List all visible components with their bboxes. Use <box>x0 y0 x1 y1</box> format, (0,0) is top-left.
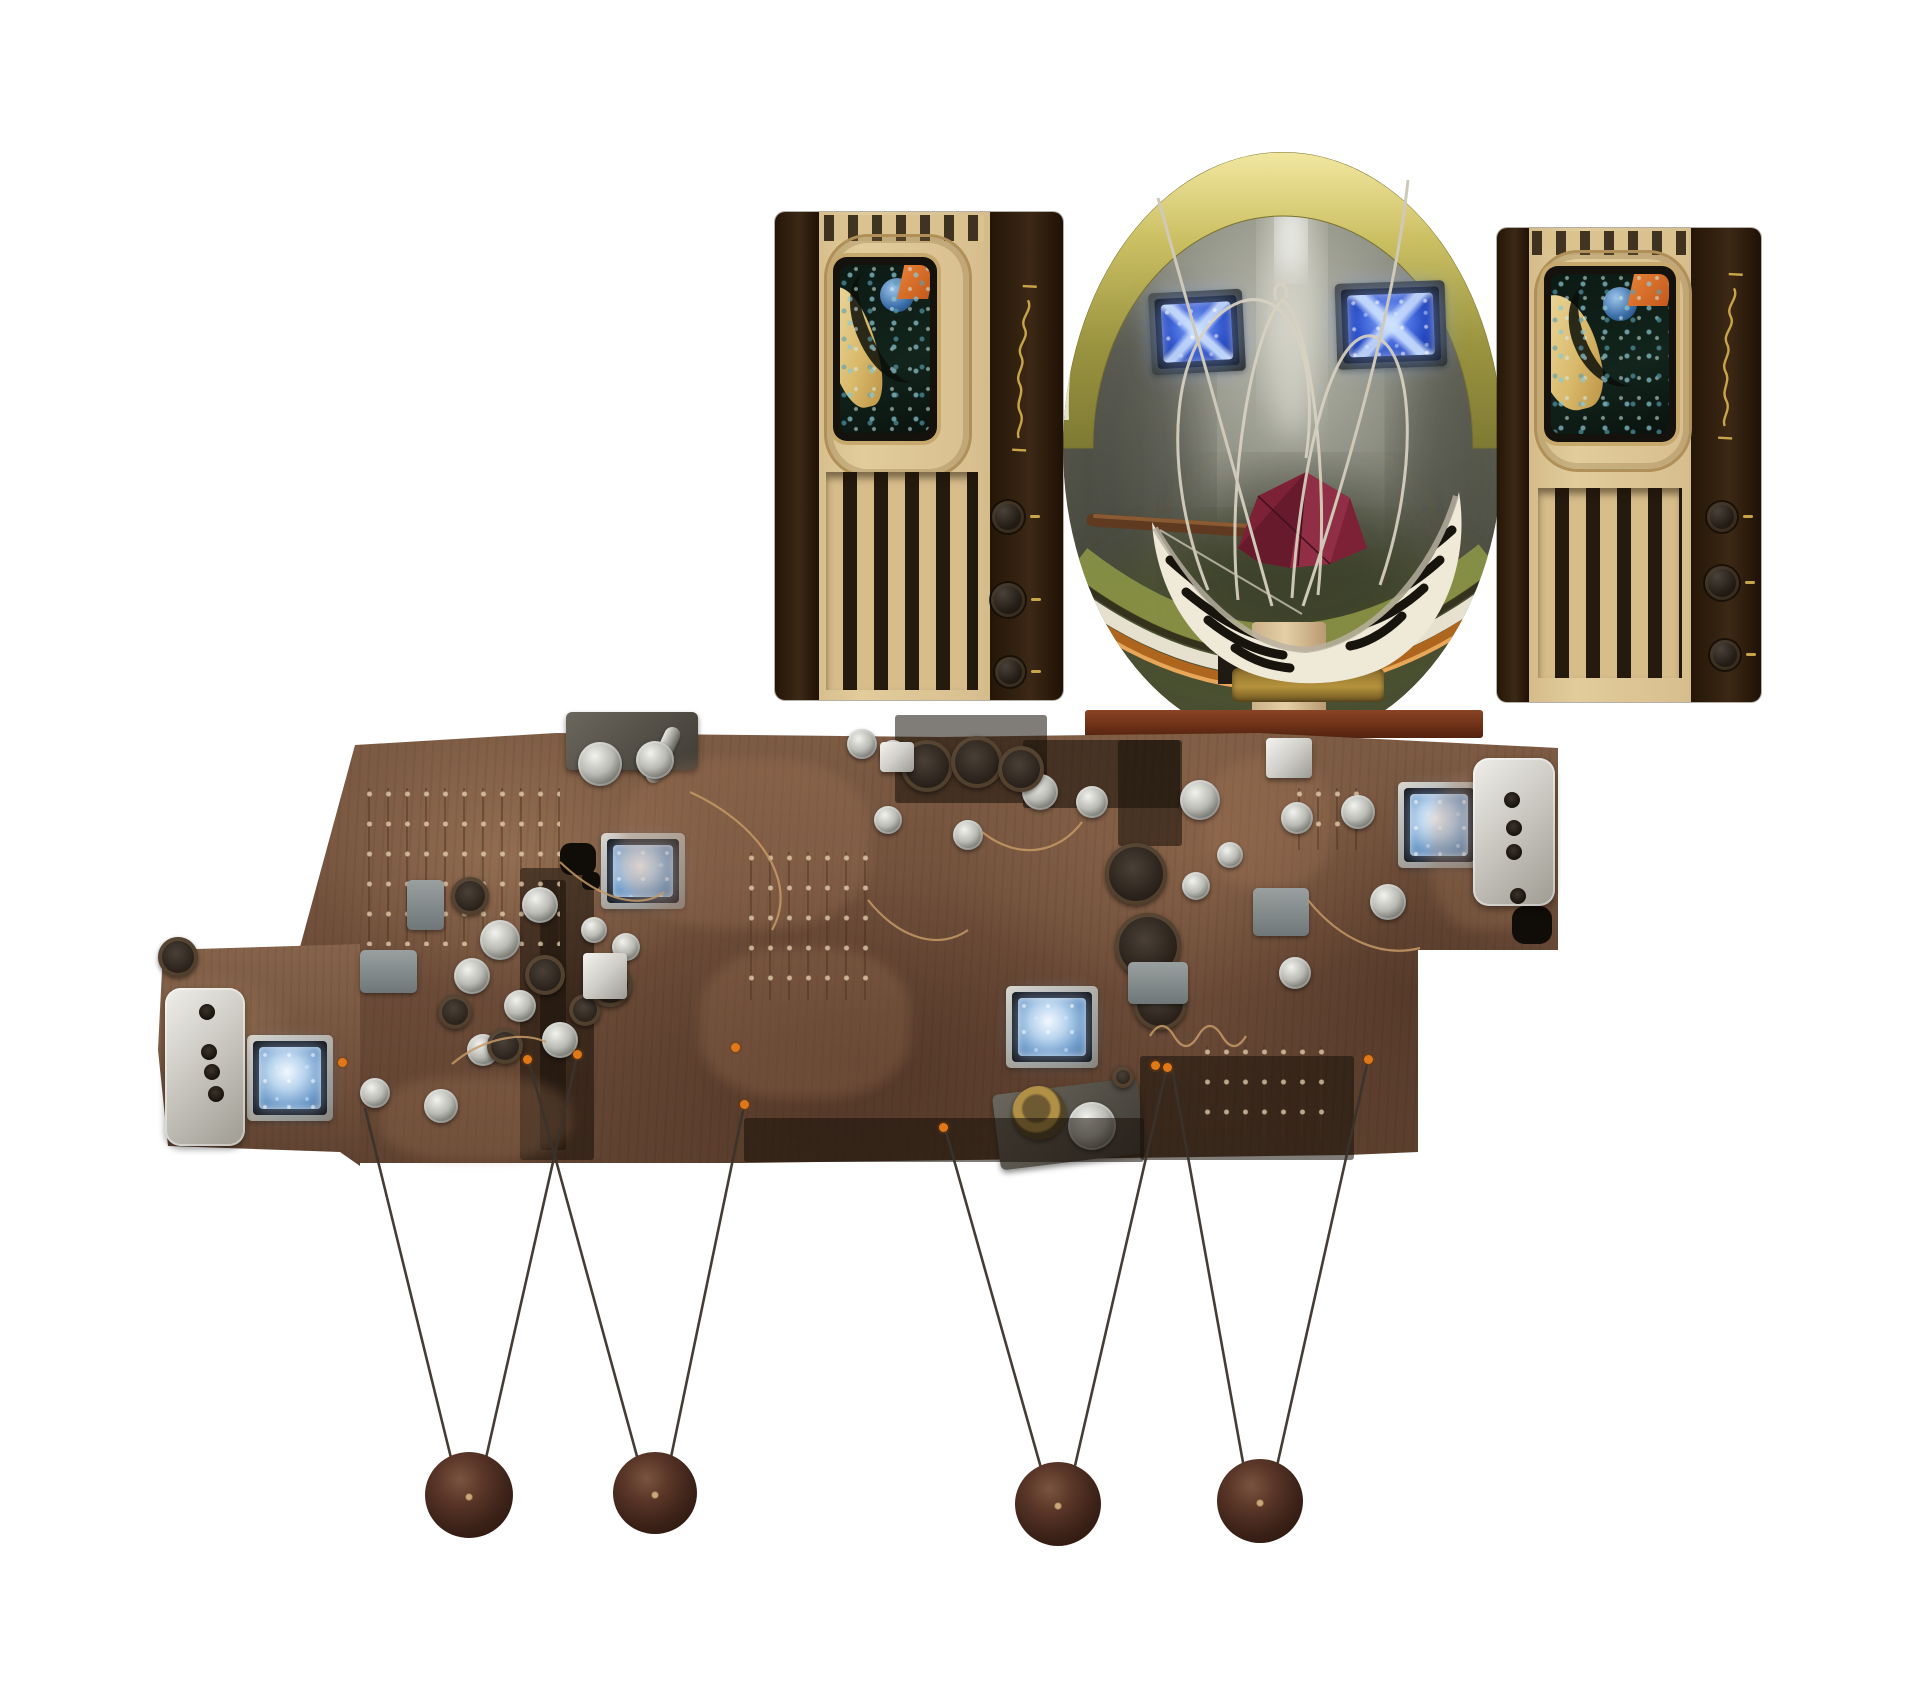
vacuum-tube-silver <box>1281 802 1313 834</box>
ball-center-fleck <box>464 1492 474 1502</box>
mini-crt-glow <box>1161 301 1234 363</box>
vacuum-tube-silver <box>636 741 674 779</box>
ornament-fold-lines <box>1258 472 1330 566</box>
diagonal-wire-left <box>1158 198 1272 606</box>
vacuum-tube-dark <box>487 1028 523 1064</box>
pendulum-wire <box>945 1128 1041 1468</box>
red-folded-ornament <box>1238 472 1367 568</box>
capacitor-block <box>1253 888 1309 936</box>
vacuum-tube-dark <box>951 736 1003 788</box>
wooden-base-plank <box>1085 710 1483 738</box>
vacuum-tube-dark <box>451 877 489 915</box>
mini-crt-screen <box>1148 289 1246 376</box>
board-cutout <box>1512 906 1552 944</box>
rim-glint-right <box>1466 250 1500 420</box>
knob-tick-mark <box>1031 598 1041 601</box>
wooden-ball <box>1015 1462 1101 1546</box>
wooden-ball <box>613 1452 697 1534</box>
vacuum-tube-dark <box>998 746 1044 792</box>
component-pin-rows <box>1198 1046 1336 1138</box>
vacuum-tube-dark <box>1105 843 1167 905</box>
shield-box-hole <box>1506 820 1522 836</box>
ball-center-fleck <box>1255 1498 1265 1508</box>
tv-knob <box>1705 566 1739 600</box>
wire-anchor-dot <box>731 1043 740 1052</box>
tv-right-crt-screen <box>1551 274 1669 434</box>
dish-specular-spot <box>1277 196 1305 276</box>
shield-box-hole <box>208 1086 224 1102</box>
capacitor-block <box>1128 962 1188 1004</box>
vacuum-tube-silver <box>581 917 607 943</box>
vacuum-tube-silver <box>874 806 902 834</box>
mini-crt-screen <box>1006 986 1098 1068</box>
vacuum-tube-dark <box>525 955 565 995</box>
bowl-support-wire <box>1160 530 1302 614</box>
wooden-stick-highlight <box>1095 516 1296 529</box>
wire-anchor-dot <box>939 1123 948 1132</box>
wire-anchor-dot <box>1163 1063 1172 1072</box>
shield-box-hole <box>1506 844 1522 860</box>
component-pin-rows <box>742 852 870 1000</box>
mini-crt-screen <box>1335 280 1448 370</box>
tv-right-side-panel <box>1497 228 1529 702</box>
diagonal-wire-right <box>1303 180 1408 606</box>
knob-tick-mark <box>1743 515 1753 518</box>
tv-knob <box>991 583 1025 617</box>
ornament-facet-dark <box>1238 472 1306 568</box>
knob-tick-mark <box>1031 670 1041 673</box>
tv-knob <box>992 501 1024 533</box>
vacuum-tube-silver <box>454 958 490 994</box>
ornament-facet-light <box>1290 472 1350 568</box>
vacuum-tube-silver <box>1180 780 1220 820</box>
pedestal-brass-bracket <box>1232 668 1384 702</box>
ball-center-fleck <box>1053 1501 1063 1511</box>
small-black-knob <box>1112 1066 1134 1088</box>
installation-photo <box>0 0 1920 1700</box>
tv-right-control-panel <box>1691 228 1761 702</box>
capacitor-block <box>407 880 444 930</box>
vacuum-tube-silver <box>424 1089 458 1123</box>
wire-anchor-dot <box>1364 1055 1373 1064</box>
wooden-ball <box>425 1452 513 1538</box>
board-cutout <box>582 872 600 890</box>
board-light-zone <box>380 1076 570 1160</box>
mini-crt-glow <box>1347 293 1435 358</box>
vacuum-tube-silver <box>1217 842 1243 868</box>
tv-left-bottom-slats <box>826 472 978 690</box>
vacuum-tube-silver <box>1182 872 1210 900</box>
vintage-tv-left <box>775 212 1063 700</box>
vacuum-tube-silver <box>1279 957 1311 989</box>
vintage-tv-right <box>1497 228 1761 702</box>
vacuum-tube-silver <box>847 729 877 759</box>
board-cutout <box>560 843 596 875</box>
vacuum-tube-silver <box>578 742 622 786</box>
shield-box-hole <box>201 1044 217 1060</box>
metal-cube-component <box>583 953 627 999</box>
tv-knob <box>995 657 1025 687</box>
wooden-stick <box>1093 520 1298 534</box>
tv-knob <box>1707 502 1737 532</box>
wire-anchor-dot <box>338 1058 347 1067</box>
knob-tick-mark <box>1030 515 1040 518</box>
metal-cube-component <box>880 742 914 772</box>
vacuum-tube-silver <box>953 820 983 850</box>
vacuum-tube-silver <box>480 920 520 960</box>
vacuum-tube-dark <box>158 937 198 977</box>
screen-art-glitter <box>840 265 930 433</box>
mini-crt-screen <box>247 1035 333 1121</box>
board-dark-zone <box>1118 740 1182 846</box>
knob-tick-mark <box>1745 581 1755 584</box>
ball-center-fleck <box>650 1490 660 1500</box>
mini-crt-speckles <box>1018 998 1086 1056</box>
mini-crt-speckles <box>1347 293 1435 358</box>
tv-right-bottom-slats <box>1538 488 1682 678</box>
capacitor-block <box>360 950 417 993</box>
wire-anchor-dot <box>523 1055 532 1064</box>
dish-specular-streak <box>1262 160 1322 440</box>
shield-box-hole <box>1504 792 1520 808</box>
mini-crt-speckles <box>259 1047 321 1109</box>
metal-cube-component <box>1266 738 1312 778</box>
tv-knob <box>1710 640 1740 670</box>
mini-crt-glow <box>1018 998 1086 1056</box>
mini-crt-glow <box>259 1047 321 1109</box>
rim-glint-left <box>1066 250 1100 420</box>
tv-left-control-panel <box>990 212 1063 700</box>
tv-left-side-panel <box>775 212 819 700</box>
shield-box-hole <box>199 1004 215 1020</box>
shield-box-hole <box>204 1064 220 1080</box>
wooden-ball <box>1217 1459 1303 1543</box>
screen-art-glitter <box>1551 274 1669 434</box>
wire-anchor-dot <box>1151 1061 1160 1070</box>
vacuum-tube-silver <box>360 1078 390 1108</box>
wire-anchor-dot <box>573 1050 582 1059</box>
knob-tick-mark <box>1746 653 1756 656</box>
vacuum-tube-silver <box>1341 795 1375 829</box>
vacuum-tube-silver <box>1076 786 1108 818</box>
vacuum-tube-silver <box>504 990 536 1022</box>
tv-left-crt-screen <box>840 265 930 433</box>
vacuum-tube-silver <box>522 887 558 923</box>
shield-box-hole <box>1510 888 1526 904</box>
mini-crt-speckles <box>1161 301 1234 363</box>
vacuum-tube-dark <box>438 995 472 1029</box>
wire-anchor-dot <box>740 1100 749 1109</box>
vacuum-tube-silver <box>1370 884 1406 920</box>
component-pin-rows <box>360 788 560 946</box>
